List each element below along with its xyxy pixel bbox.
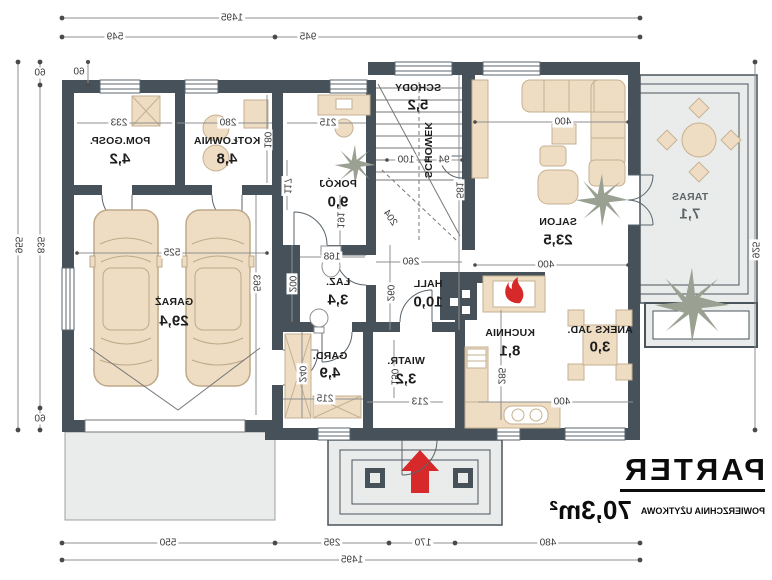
dim-191: 191: [335, 210, 346, 231]
floor-title: PARTER: [620, 452, 765, 492]
dim-gard-240: 240: [297, 364, 308, 385]
dim-laz-h: 200: [287, 274, 298, 295]
dim-salon-400-top: 400: [553, 117, 574, 128]
title-block: PARTER POWIERZCHNIA UŻYTKOWA 70,3m²: [547, 452, 765, 526]
room-label-kotlownia: KOTŁOWNIA: [194, 135, 261, 147]
room-area-aneks: 3,0: [590, 339, 611, 356]
dim-top-garage: 549: [105, 32, 126, 43]
room-area-schody: 5,2: [408, 97, 429, 114]
room-label-aneks: ANEKS JAD.: [567, 324, 633, 336]
dim-bottom-295: 295: [322, 538, 343, 549]
dim-hall-260-h: 260: [385, 283, 396, 304]
dim-kuchnia-285: 285: [496, 366, 507, 387]
dim-right-inner: 835: [35, 235, 46, 256]
dim-hall-260-w: 260: [401, 257, 422, 268]
dim-pokoj-h: 117: [282, 176, 293, 196]
room-label-pokoj: POKÓJ: [319, 178, 357, 190]
dim-schody-100: 100: [396, 155, 417, 166]
dim-60-top: 60: [32, 68, 47, 79]
room-label-kuchnia: KUCHNIA: [485, 327, 535, 339]
room-area-gard: 4,9: [320, 365, 341, 382]
room-area-pokoj: 9,0: [328, 194, 349, 211]
room-area-garaz: 29,4: [159, 313, 188, 330]
dim-wiatr-213: 213: [410, 397, 431, 408]
dim-60-bottom: 60: [32, 414, 47, 425]
room-area-salon: 23,5: [543, 232, 572, 249]
room-area-laz: 3,4: [328, 292, 349, 309]
dim-60-garage: 60: [71, 67, 86, 78]
dim-bottom-170: 170: [413, 538, 434, 549]
dim-bottom-480: 480: [538, 538, 559, 549]
dim-top-total: 1495: [219, 13, 245, 24]
room-area-hall: 10,0: [413, 294, 442, 311]
mirrored-plan: 1495 945 549 480 170 295 550 1495 925 95…: [0, 0, 772, 580]
room-label-hall: HALL: [414, 278, 443, 290]
room-label-salon: SALON: [539, 216, 577, 228]
room-label-schody: SCHODY: [395, 82, 441, 94]
room-label-wiatr: WIATR.: [387, 355, 425, 367]
room-label-gard: GARD.: [313, 350, 348, 362]
dim-left-total: 925: [750, 240, 761, 261]
room-label-taras: TARAS: [672, 191, 708, 203]
driveway: [65, 432, 275, 520]
dim-top-main: 945: [298, 32, 319, 43]
dim-pomgosp-w: 233: [109, 118, 130, 129]
dim-bottom-550: 550: [158, 538, 179, 549]
room-label-schowek: SCHOWEK: [422, 122, 434, 178]
room-area-kuchnia: 8,1: [500, 343, 521, 360]
usable-area-value: 70,3m²: [549, 495, 631, 526]
room-area-kotlownia: 4,8: [217, 151, 238, 168]
dim-bottom-total: 1495: [339, 555, 365, 566]
room-label-garaz: GARAŻ: [155, 296, 193, 308]
dim-schody-94: 94: [436, 155, 451, 166]
room-area-taras: 7,1: [680, 206, 701, 223]
dim-salon-400-bottom: 400: [536, 260, 557, 271]
dim-gard-215: 215: [315, 394, 336, 405]
room-area-pomgosp: 4,2: [110, 151, 131, 168]
dim-kotlownia-h: 180: [262, 130, 273, 151]
room-area-wiatr: 3,2: [396, 371, 417, 388]
dim-kotlownia-w: 280: [218, 118, 239, 129]
entrance-porch: [328, 440, 502, 525]
floorplan-page: 1495 945 549 480 170 295 550 1495 925 95…: [0, 0, 772, 580]
dim-kuchnia-400: 400: [552, 397, 573, 408]
dim-pokoj-w: 215: [318, 118, 339, 129]
dim-right-total: 955: [13, 235, 24, 256]
room-label-laz: ŁAZ.: [326, 276, 350, 288]
dim-garaz-563: 563: [251, 273, 262, 294]
dim-laz-w: 168: [322, 252, 343, 263]
usable-area-label: POWIERZCHNIA UŻYTKOWA: [641, 506, 765, 516]
room-label-pomgosp: POM.GOSP.: [90, 135, 151, 147]
dim-garaz-525: 525: [162, 248, 183, 259]
dim-salon-581: 581: [454, 180, 465, 201]
